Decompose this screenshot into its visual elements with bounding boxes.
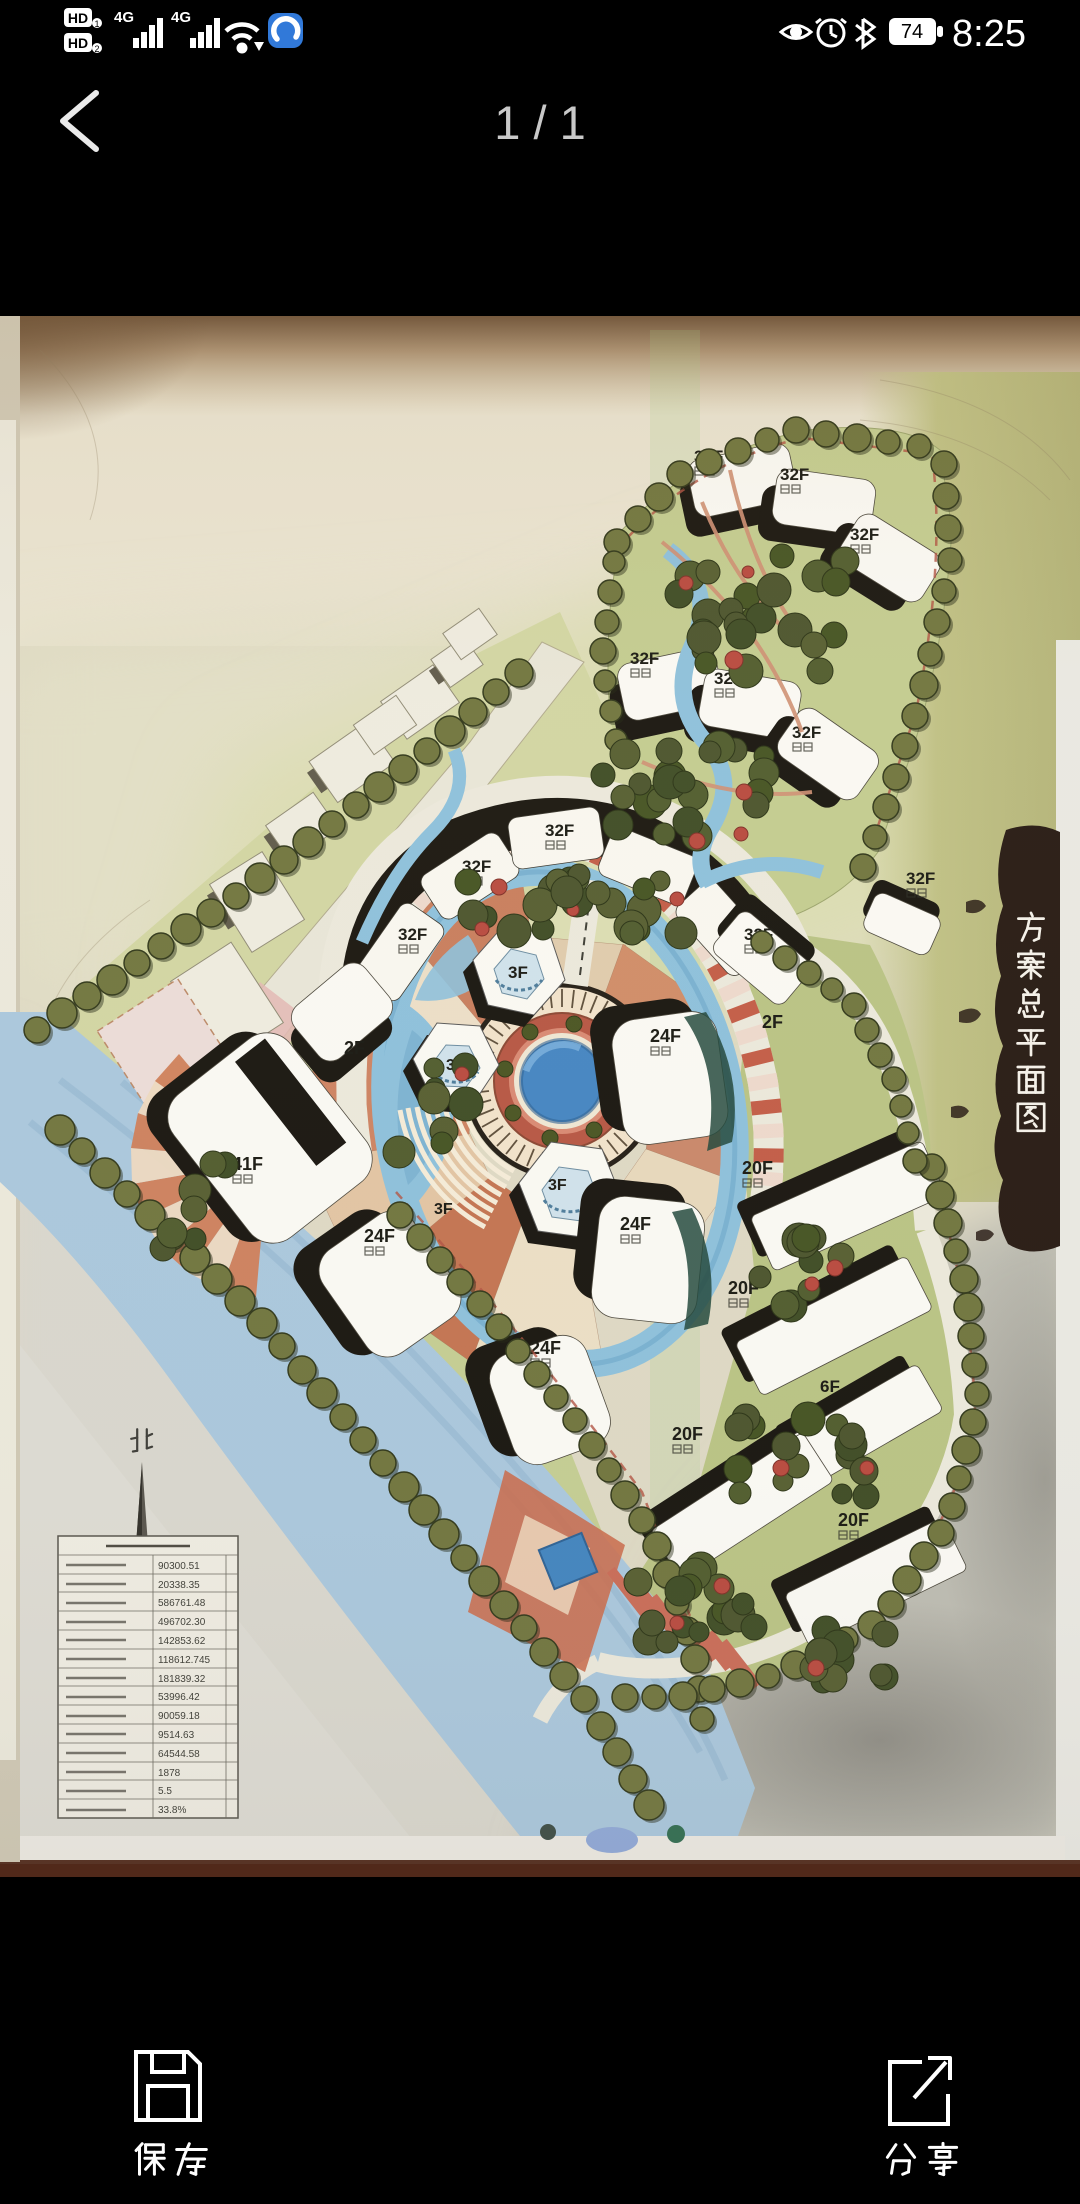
- svg-text:2: 2: [94, 44, 99, 54]
- svg-text:1: 1: [94, 19, 99, 29]
- svg-text:4G: 4G: [114, 9, 134, 26]
- svg-text:74: 74: [901, 21, 923, 43]
- svg-text:HD: HD: [68, 35, 88, 51]
- svg-text:HD: HD: [68, 10, 88, 26]
- svg-text:4G: 4G: [171, 9, 191, 26]
- svg-text:8:25: 8:25: [952, 13, 1026, 55]
- svg-text:1 / 1: 1 / 1: [494, 96, 585, 149]
